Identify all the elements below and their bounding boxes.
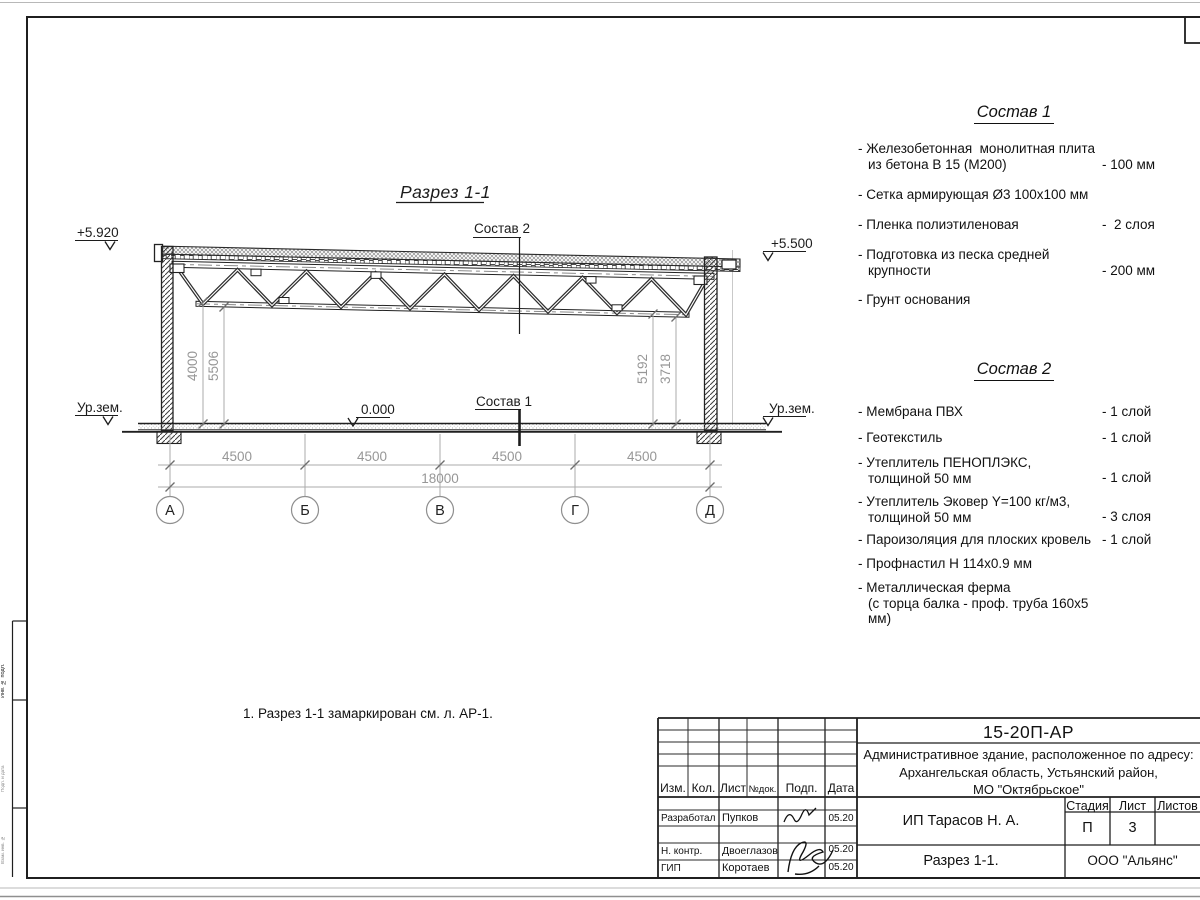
left-stamp-label-1: Инв. № подл. — [1, 627, 10, 698]
row-role: Н. контр. — [661, 846, 718, 857]
dim-4000: 4000 — [185, 351, 200, 381]
list-item: - Утеплитель Эковер Y=100 кг/м3,толщиной… — [858, 494, 1108, 525]
list-item: - Сетка армирующая Ø3 100х100 мм — [858, 187, 1108, 203]
svg-text:4500: 4500 — [222, 449, 252, 464]
svg-text:4500: 4500 — [492, 449, 522, 464]
list-item: - Пленка полиэтиленовая — [858, 217, 1108, 233]
axis-b: Б — [300, 503, 310, 519]
list-item: - Подготовка из песка среднейкрупности — [858, 247, 1108, 278]
svg-text:0.000: 0.000 — [361, 402, 395, 417]
floor-level-mark: 0.000 — [348, 402, 395, 426]
elevation-mark-ground-left: Ур.зем. — [75, 400, 123, 425]
elevation-mark-left-top: +5.920 — [75, 225, 119, 250]
axis-a: А — [165, 503, 175, 519]
leader-sostav2: Состав 2 — [473, 221, 530, 334]
company-name: ООО "Альянс" — [1065, 853, 1200, 868]
elevation-mark-ground-right: Ур.зем. — [763, 401, 815, 426]
row-date: 05.20 — [825, 813, 857, 824]
project-description: Административное здание, расположенное п… — [857, 746, 1200, 799]
column-right — [705, 257, 718, 431]
doc-number: 15-20П-АР — [857, 722, 1200, 743]
sheet-header: Лист — [1110, 799, 1155, 813]
row-date: 05.20 — [825, 862, 857, 873]
list-item: - Металлическая ферма(с торца балка - пр… — [858, 580, 1108, 627]
stage-value: П — [1065, 820, 1110, 836]
sostav1-title: Состав 1 — [858, 103, 1170, 124]
column-left — [162, 247, 174, 431]
footing-right — [697, 432, 721, 444]
svg-text:4500: 4500 — [357, 449, 387, 464]
roof-right-fascia — [722, 260, 736, 269]
drawing-note: 1. Разрез 1-1 замаркирован см. л. АР-1. — [243, 706, 493, 721]
section-title: Разрез 1-1 — [396, 182, 491, 203]
drawing-sheet: Разрез 1-1 — [0, 0, 1200, 900]
elevation-mark-right-top: +5.500 — [763, 236, 813, 261]
col-kol: Кол. — [688, 781, 719, 795]
list-item: - Пароизоляция для плоских кровель — [858, 532, 1108, 548]
client-name: ИП Тарасов Н. А. — [857, 813, 1065, 829]
list-item: - Профнастил Н 114х0.9 мм — [858, 556, 1108, 572]
section-title-text: Разрез 1-1 — [400, 182, 491, 202]
copy-number-box — [1185, 18, 1200, 43]
dim-5192: 5192 — [635, 354, 650, 384]
row-date: 05.20 — [825, 844, 857, 855]
bottom-dimensions: 4500 4500 4500 4500 18000 — [158, 434, 722, 496]
left-stamp-label-3: Взам. инв. № — [1, 814, 8, 864]
col-podp: Подп. — [778, 781, 825, 795]
col-izm: Изм. — [658, 781, 688, 795]
list-item: - Железобетонная монолитная плитаиз бето… — [858, 141, 1108, 172]
col-data: Дата — [825, 781, 857, 795]
axis-g: Г — [571, 503, 579, 519]
axis-d: Д — [705, 503, 715, 519]
svg-text:Ур.зем.: Ур.зем. — [77, 400, 123, 415]
row-name: Коротаев — [722, 862, 778, 874]
list-item: - Утеплитель ПЕНОПЛЭКС,толщиной 50 мм — [858, 455, 1108, 486]
row-name: Двоеглазов — [722, 845, 778, 857]
svg-text:Ур.зем.: Ур.зем. — [769, 401, 815, 416]
sheet-value: 3 — [1110, 820, 1155, 836]
row-role: Разработал — [661, 813, 718, 824]
list-item: - Геотекстиль — [858, 430, 1108, 446]
svg-text:Состав 1: Состав 1 — [476, 394, 532, 409]
sostav2-title: Состав 2 — [858, 360, 1170, 381]
dim-3718: 3718 — [658, 354, 673, 384]
row-name: Пупков — [722, 812, 777, 824]
dim-5506: 5506 — [206, 351, 221, 381]
vertical-dimensions — [199, 298, 681, 429]
sheet-title: Разрез 1-1. — [857, 853, 1065, 869]
stage-header: Стадия — [1065, 799, 1110, 813]
sheets-header: Листов — [1155, 799, 1200, 813]
col-list: Лист — [719, 781, 747, 795]
dim-total: 18000 — [421, 471, 459, 486]
leader-sostav1: Состав 1 — [475, 394, 532, 446]
svg-text:+5.920: +5.920 — [77, 225, 119, 240]
svg-text:Состав 2: Состав 2 — [474, 221, 530, 236]
row-role: ГИП — [661, 863, 718, 874]
axis-v: В — [435, 503, 445, 519]
svg-text:+5.500: +5.500 — [771, 236, 813, 251]
col-ndok: №док. — [747, 784, 778, 795]
svg-text:4500: 4500 — [627, 449, 657, 464]
footing-left — [157, 432, 181, 444]
left-stamp-label-2: Подп. и дата — [1, 726, 8, 792]
list-item: - Грунт основания — [858, 292, 1108, 308]
axis-bubbles: А Б В Г Д — [157, 497, 724, 524]
list-item: - Мембрана ПВХ — [858, 404, 1108, 420]
